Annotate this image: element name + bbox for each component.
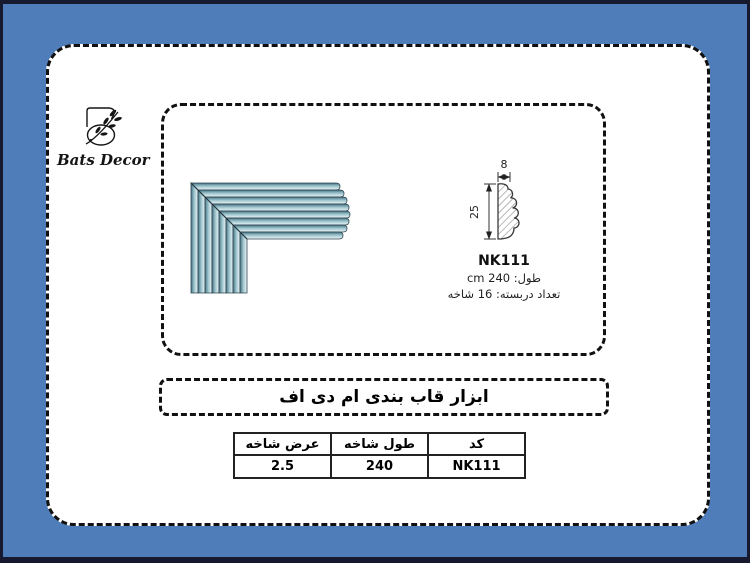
cell-branch-width: 2.5: [234, 455, 331, 478]
profile-drawing: 8 25: [444, 154, 564, 249]
table-header-row: عرض شاخه طول شاخه کد: [234, 433, 525, 455]
catalog-page: Bats Decor: [0, 0, 750, 563]
profile-outline: [498, 184, 519, 239]
title-band: ابزار قاب بندی ام دی اف: [159, 378, 609, 416]
header-branch-width: عرض شاخه: [234, 433, 331, 455]
product-card: Bats Decor: [46, 44, 710, 526]
table-row: 2.5 240 NK111: [234, 455, 525, 478]
header-branch-length: طول شاخه: [331, 433, 428, 455]
corner-molding-illustration: [189, 180, 354, 295]
product-length: طول: 240 cm: [439, 271, 569, 285]
product-pack-count: تعداد دربسته: 16 شاخه: [439, 287, 569, 301]
dim-width-label: 8: [501, 158, 508, 171]
header-code: کد: [428, 433, 525, 455]
cell-code: NK111: [428, 455, 525, 478]
page-title: ابزار قاب بندی ام دی اف: [279, 387, 488, 407]
profile-spec: 8 25 NK111 طول: 240 cm تعداد دربسته: 16 …: [439, 154, 569, 301]
brand-name: Bats Decor: [57, 151, 147, 169]
spec-table: عرض شاخه طول شاخه کد 2.5 240 NK111: [233, 432, 526, 479]
cell-branch-length: 240: [331, 455, 428, 478]
dim-height-label: 25: [468, 205, 481, 219]
brand-logo: Bats Decor: [57, 103, 147, 169]
bats-decor-logo-icon: [79, 103, 125, 149]
product-code: NK111: [439, 253, 569, 269]
